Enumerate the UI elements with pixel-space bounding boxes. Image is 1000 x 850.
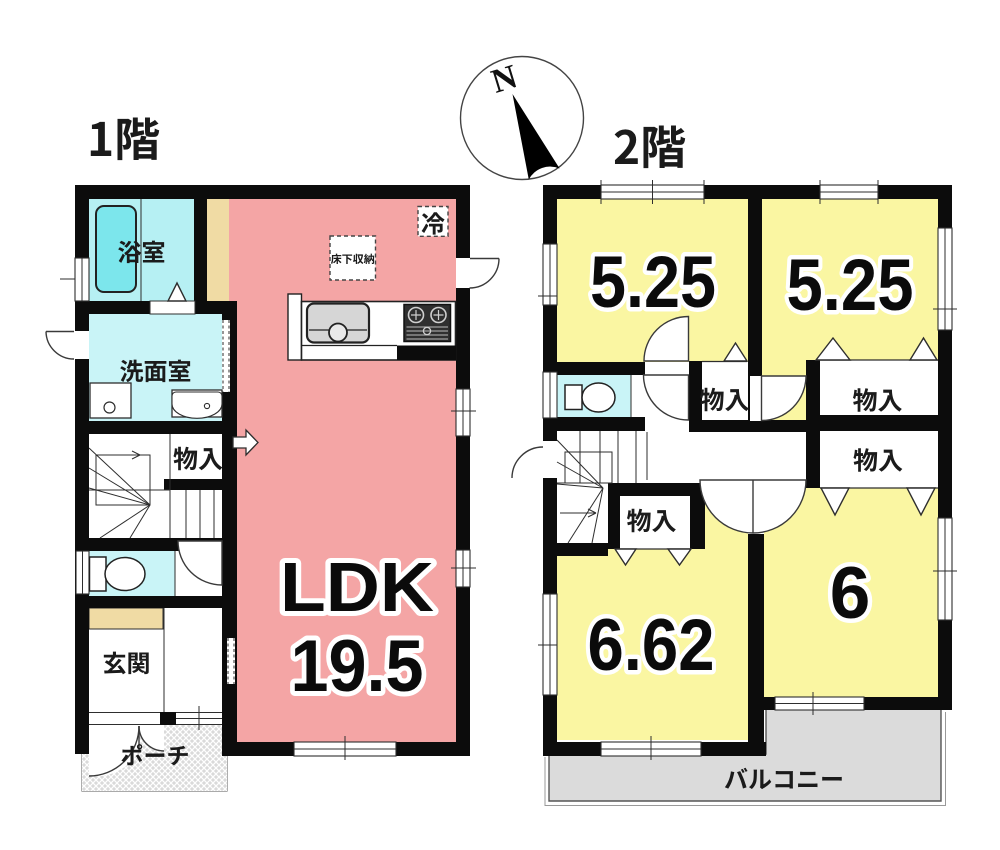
svg-text:6: 6 (830, 553, 871, 634)
svg-text:LDK: LDK (280, 548, 434, 626)
svg-text:6.62: 6.62 (588, 605, 715, 686)
svg-text:5.25: 5.25 (590, 242, 716, 323)
svg-text:19.5: 19.5 (291, 626, 424, 707)
svg-text:5.25: 5.25 (787, 245, 914, 326)
